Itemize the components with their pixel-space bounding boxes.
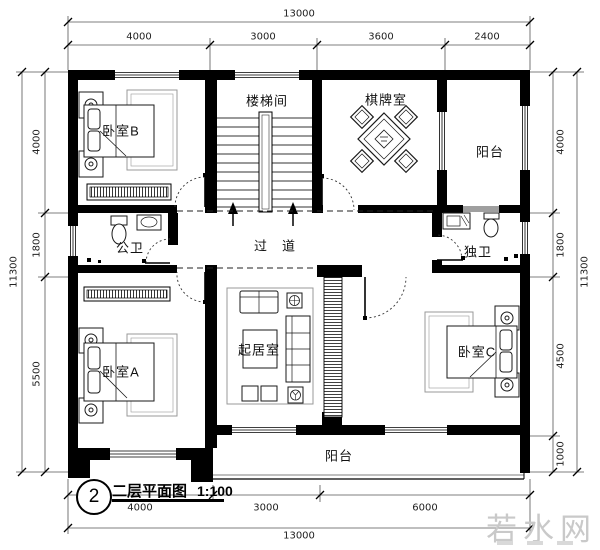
dim-right-total: 11300 (580, 256, 591, 288)
dim-top-seg-4: 2400 (474, 32, 499, 43)
dim-top-seg-3: 3600 (368, 32, 393, 43)
dim-right-seg-4: 1000 (556, 441, 567, 466)
drawing-number-circle: 2 (76, 479, 112, 515)
drawing-title-block: 二层平面图 1:100 (112, 480, 233, 501)
room-label-game-room: 棋牌室 (365, 90, 407, 109)
drawing-title: 二层平面图 (112, 480, 187, 501)
room-label-stairwell: 楼梯间 (246, 91, 288, 110)
dim-bottom-seg-1: 4000 (127, 503, 152, 514)
room-label-balcony-top: 阳台 (476, 142, 504, 161)
room-label-balcony-bottom: 阳台 (325, 446, 353, 465)
dim-left-seg-2: 1800 (32, 232, 43, 257)
room-label-bedroom-b: 卧室B (102, 121, 140, 140)
dim-left-seg-3: 5500 (32, 361, 43, 386)
dim-bottom-total: 13000 (283, 531, 315, 542)
dim-bottom-seg-3: 6000 (412, 503, 437, 514)
dim-right-seg-3: 4500 (556, 343, 567, 368)
dim-right-seg-1: 4000 (556, 129, 567, 154)
dim-top-seg-1: 4000 (126, 32, 151, 43)
drawing-scale: 1:100 (197, 483, 233, 499)
corridor-dashed-lines (177, 211, 437, 268)
dim-right-seg-2: 1800 (556, 232, 567, 257)
dim-top-total: 13000 (283, 9, 315, 20)
staircase (217, 112, 312, 212)
room-label-private-bath: 独卫 (464, 242, 492, 261)
floor-plan-page: 卧室B 楼梯间 棋牌室 阳台 公卫 过 道 独卫 卧室A 起居室 卧室C 阳台 … (0, 0, 600, 550)
floor-plan-drawing (0, 0, 600, 550)
hatched-partition-wall (324, 277, 342, 417)
drawing-number: 2 (89, 486, 100, 508)
mahjong-table-set (351, 106, 418, 173)
dim-bottom-seg-2: 3000 (253, 503, 278, 514)
balcony-bottom-railing (211, 437, 524, 479)
watermark-marks (497, 541, 573, 545)
dim-left-seg-1: 4000 (32, 129, 43, 154)
room-label-bedroom-a: 卧室A (102, 362, 140, 381)
dim-left-total: 11300 (9, 256, 20, 288)
title-underline (112, 499, 224, 502)
doors (142, 173, 465, 320)
room-label-living-room: 起居室 (238, 340, 280, 359)
dim-top-seg-2: 3000 (250, 32, 275, 43)
room-label-corridor: 过 道 (254, 236, 296, 255)
room-label-public-bath: 公卫 (116, 238, 144, 257)
room-label-bedroom-c: 卧室C (458, 342, 496, 361)
